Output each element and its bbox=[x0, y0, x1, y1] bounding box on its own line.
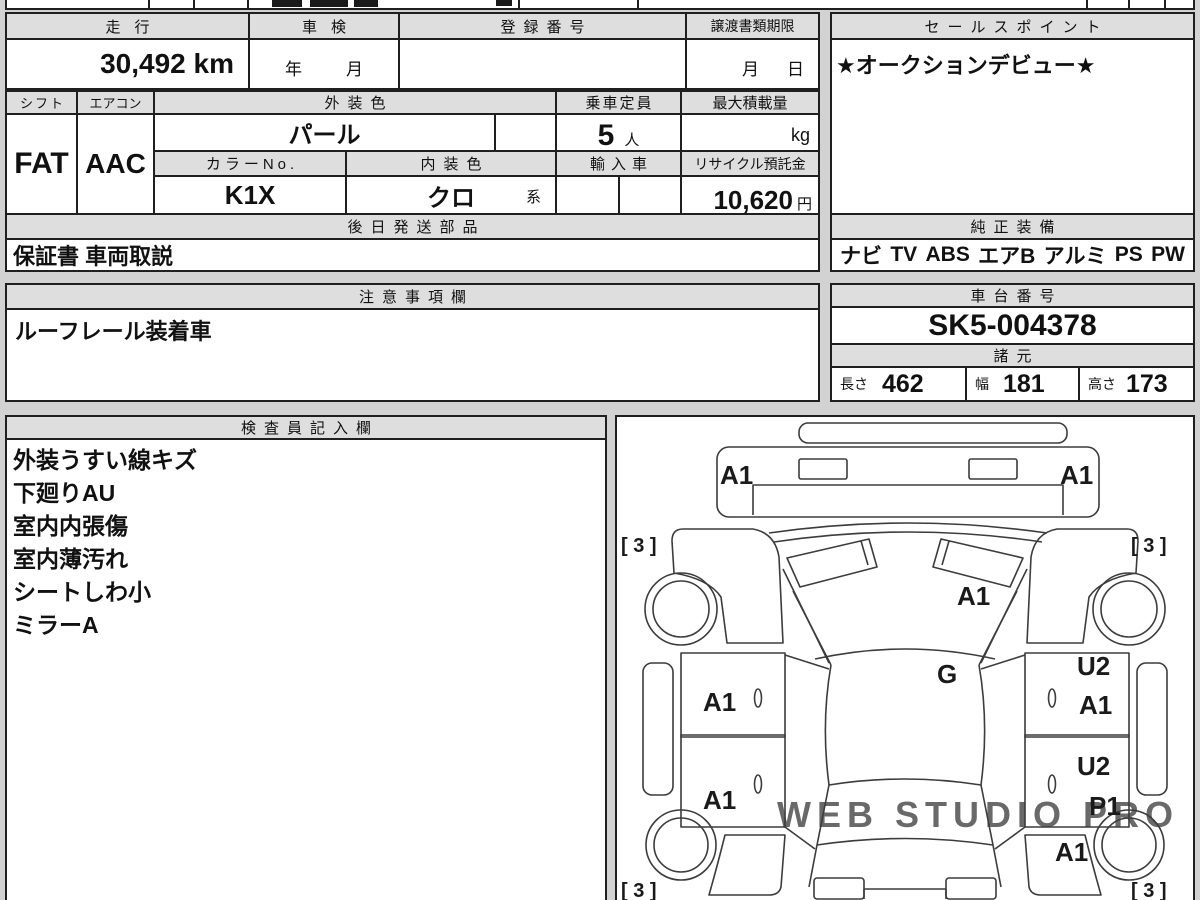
interior-color-name: クロ bbox=[427, 178, 475, 213]
damage-label-front-right-door: A1 bbox=[1079, 690, 1112, 720]
sales-point-value: ★オークションデビュー★ bbox=[830, 38, 1195, 215]
length-value: 462 bbox=[882, 370, 924, 399]
recycle-unit: 円 bbox=[797, 193, 812, 214]
capacity-header: 乗車定員 bbox=[555, 90, 682, 115]
cutoff-text-remnant bbox=[272, 0, 302, 7]
length-label: 長さ bbox=[840, 374, 868, 394]
dimension-length: 長さ 462 bbox=[830, 366, 967, 402]
auction-sheet: 走行 車検 登録番号 譲渡書類期限 30,492 km 年 月 月 日 セールス… bbox=[0, 0, 1200, 900]
import-value-cell-1 bbox=[555, 175, 620, 215]
cutoff-sep bbox=[1128, 0, 1130, 10]
notes-value: ルーフレール装着車 bbox=[5, 308, 820, 402]
inspector-note-line: 外装うすい線キズ bbox=[13, 444, 599, 477]
equipment-item: PS bbox=[1115, 243, 1143, 267]
damage-label-front-right-door-upper: U2 bbox=[1077, 651, 1110, 681]
cutoff-text-remnant bbox=[354, 0, 378, 7]
color-no-header: カラーNo. bbox=[153, 150, 347, 177]
equipment-item: アルミ bbox=[1044, 240, 1107, 270]
cutoff-sep bbox=[518, 0, 520, 10]
genuine-equipment-header: 純正装備 bbox=[830, 213, 1195, 240]
later-parts-header: 後日発送部品 bbox=[5, 213, 820, 240]
inspector-note-line: 室内内張傷 bbox=[13, 510, 599, 543]
inspection-year-label: 年 bbox=[285, 55, 302, 80]
capacity-number: 5 bbox=[598, 119, 615, 153]
interior-color-header: 内装色 bbox=[345, 150, 557, 177]
equipment-item: ABS bbox=[926, 243, 970, 267]
mileage-value: 30,492 km bbox=[5, 38, 250, 90]
max-load-header: 最大積載量 bbox=[680, 90, 820, 115]
dimension-height: 高さ 173 bbox=[1078, 366, 1195, 402]
sales-point-header: セールスポイント bbox=[830, 12, 1195, 40]
shift-value: FAT bbox=[5, 113, 78, 215]
damage-label-rear-left-door: A1 bbox=[703, 785, 736, 815]
later-parts-value: 保証書 車両取説 bbox=[5, 238, 820, 272]
tire-label-rear-left: [ 3 ] bbox=[621, 880, 657, 900]
registration-value bbox=[398, 38, 687, 90]
equipment-item: TV bbox=[890, 243, 917, 267]
interior-color-suffix: 系 bbox=[526, 186, 541, 207]
chassis-header: 車台番号 bbox=[830, 283, 1195, 308]
exterior-color-value: パール bbox=[153, 113, 496, 152]
width-value: 181 bbox=[1003, 370, 1045, 399]
inspector-note-line: シートしわ小 bbox=[13, 576, 599, 609]
dimensions-header: 諸元 bbox=[830, 343, 1195, 368]
import-value-cell-2 bbox=[618, 175, 682, 215]
chassis-value: SK5-004378 bbox=[830, 306, 1195, 345]
cutoff-text-remnant bbox=[310, 0, 348, 7]
import-header: 輸入車 bbox=[555, 150, 682, 177]
color-no-value: K1X bbox=[153, 175, 347, 215]
transfer-deadline-header: 譲渡書類期限 bbox=[685, 12, 820, 40]
tire-label-rear-right: [ 3 ] bbox=[1131, 880, 1167, 900]
damage-label-front-bumper-left: A1 bbox=[720, 460, 753, 490]
cutoff-sep bbox=[1086, 0, 1088, 10]
equipment-item: エアB bbox=[978, 240, 1035, 270]
inspection-header: 車検 bbox=[248, 12, 400, 40]
registration-header: 登録番号 bbox=[398, 12, 687, 40]
cutoff-row bbox=[5, 0, 1195, 10]
cutoff-sep bbox=[247, 0, 249, 10]
recycle-amount: 10,620 bbox=[713, 185, 793, 216]
capacity-value: 5 人 bbox=[555, 113, 682, 152]
exterior-color-header: 外装色 bbox=[153, 90, 557, 115]
inspector-notes-header: 検査員記入欄 bbox=[5, 415, 607, 440]
interior-color-value: クロ 系 bbox=[345, 175, 557, 215]
equipment-item: ナビ bbox=[840, 240, 882, 270]
inspector-note-line: 下廻りAU bbox=[13, 477, 599, 510]
aircon-value: AAC bbox=[76, 113, 155, 215]
car-top-view-diagram: WEB STUDIO PRO bbox=[617, 417, 1193, 900]
inspector-notes-value: 外装うすい線キズ 下廻りAU 室内内張傷 室内薄汚れ シートしわ小 ミラーA bbox=[5, 438, 607, 900]
equipment-item: PW bbox=[1151, 243, 1185, 267]
notes-header: 注意事項欄 bbox=[5, 283, 820, 310]
transfer-month-label: 月 bbox=[742, 55, 759, 80]
cutoff-sep bbox=[193, 0, 195, 10]
cutoff-sep bbox=[148, 0, 150, 10]
mileage-header: 走行 bbox=[5, 12, 250, 40]
damage-label-cowl: G bbox=[937, 659, 957, 689]
damage-label-rear-right-quarter: A1 bbox=[1055, 837, 1088, 867]
dimension-width: 幅 181 bbox=[965, 366, 1080, 402]
genuine-equipment-value: ナビ TV ABS エアB アルミ PS PW bbox=[830, 238, 1195, 272]
damage-label-front-bumper-right: A1 bbox=[1060, 460, 1093, 490]
damage-label-rear-right-door-upper: U2 bbox=[1077, 751, 1110, 781]
transfer-deadline-value: 月 日 bbox=[685, 38, 820, 90]
cutoff-text-remnant bbox=[496, 0, 512, 6]
cutoff-sep bbox=[637, 0, 639, 10]
inspection-value: 年 月 bbox=[248, 38, 400, 90]
tire-label-front-right: [ 3 ] bbox=[1131, 535, 1167, 557]
damage-label-hood: A1 bbox=[957, 581, 990, 611]
width-label: 幅 bbox=[975, 374, 989, 394]
transfer-day-label: 日 bbox=[787, 55, 804, 80]
recycle-deposit-value: 10,620 円 bbox=[680, 175, 820, 215]
shift-header: シフト bbox=[5, 90, 78, 115]
max-load-value: kg bbox=[680, 113, 820, 152]
inspection-month-label: 月 bbox=[346, 55, 363, 80]
capacity-unit: 人 bbox=[624, 129, 639, 150]
recycle-deposit-header: リサイクル預託金 bbox=[680, 150, 820, 177]
inspector-note-line: ミラーA bbox=[13, 609, 599, 642]
car-diagram-box: WEB STUDIO PRO bbox=[615, 415, 1195, 900]
damage-label-rear-right-door: P1 bbox=[1089, 791, 1121, 821]
aircon-header: エアコン bbox=[76, 90, 155, 115]
tire-label-front-left: [ 3 ] bbox=[621, 535, 657, 557]
cutoff-sep bbox=[1164, 0, 1166, 10]
height-label: 高さ bbox=[1088, 374, 1116, 394]
damage-label-front-left-door: A1 bbox=[703, 687, 736, 717]
inspector-note-line: 室内薄汚れ bbox=[13, 543, 599, 576]
exterior-color-extra-cell bbox=[494, 113, 557, 152]
height-value: 173 bbox=[1126, 370, 1168, 399]
